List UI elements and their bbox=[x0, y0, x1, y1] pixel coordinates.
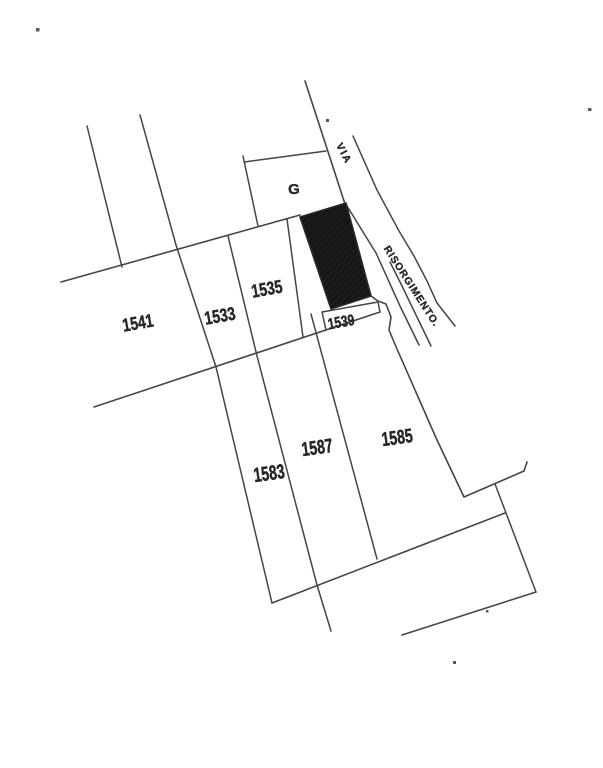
svg-text:1585: 1585 bbox=[380, 425, 414, 451]
svg-text:1587: 1587 bbox=[300, 435, 334, 461]
svg-text:G: G bbox=[288, 181, 300, 198]
svg-text:1583: 1583 bbox=[252, 459, 286, 486]
